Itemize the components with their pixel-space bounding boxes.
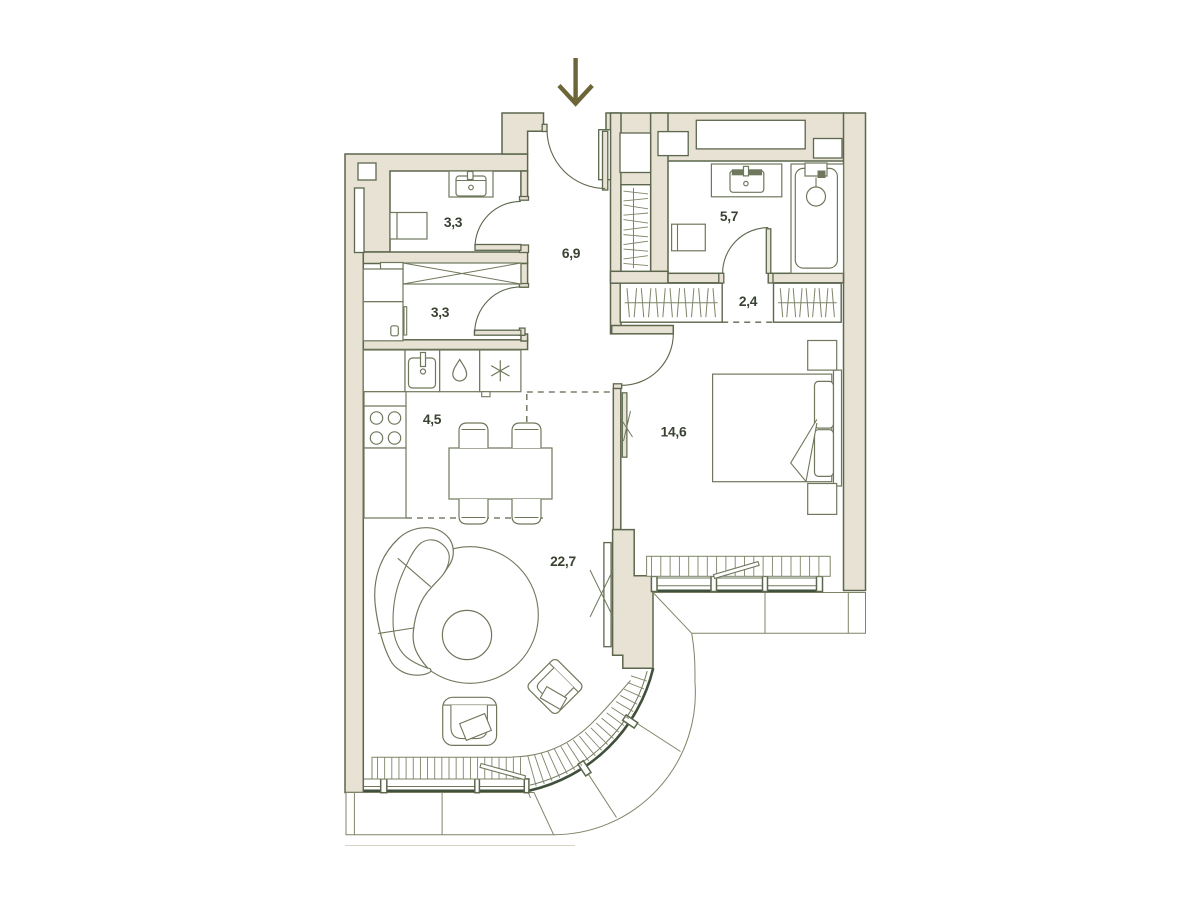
svg-text:22,7: 22,7 bbox=[550, 554, 576, 569]
svg-text:14,6: 14,6 bbox=[661, 425, 687, 440]
svg-text:4,5: 4,5 bbox=[423, 412, 442, 427]
svg-text:3,3: 3,3 bbox=[444, 215, 463, 230]
svg-text:3,3: 3,3 bbox=[431, 305, 450, 320]
svg-text:5,7: 5,7 bbox=[720, 209, 739, 224]
svg-text:6,9: 6,9 bbox=[562, 246, 581, 261]
svg-text:2,4: 2,4 bbox=[739, 294, 758, 309]
